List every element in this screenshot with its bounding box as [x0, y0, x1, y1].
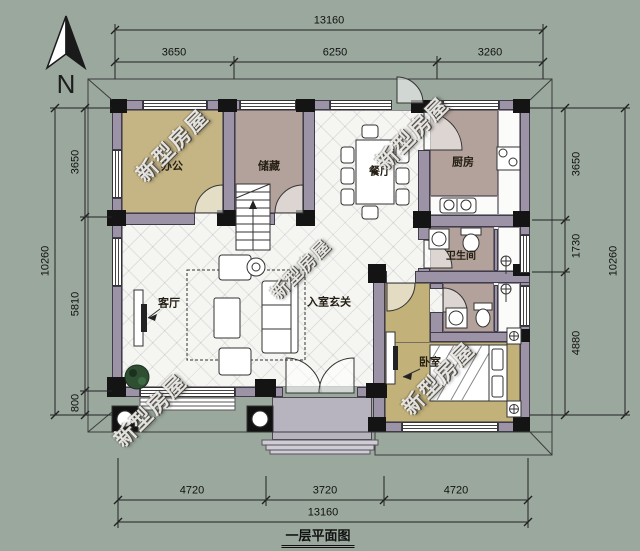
wall-office-east	[223, 110, 235, 213]
wall-bedroom-west	[373, 271, 385, 432]
entry-porch-slab	[272, 397, 372, 440]
wall-storage-east	[303, 110, 315, 213]
dim-right-seg-3: 4880	[572, 331, 583, 355]
dim-left-seg-3: 800	[71, 394, 82, 412]
plan-title: 一层平面图	[281, 529, 354, 543]
window-dining-north	[330, 100, 392, 110]
dim-bottom-seg-3: 4720	[444, 486, 468, 497]
wall-shower-divider-1	[494, 229, 498, 271]
floor-plan-canvas: 13160 3650 6250 3260 10260 3650 5810 800…	[0, 0, 640, 551]
room-label-living: 客厅	[158, 299, 180, 310]
north-arrow-icon	[47, 16, 85, 68]
dim-top-seg-1: 3650	[162, 48, 186, 59]
wall-bath-west-a	[418, 227, 430, 240]
dim-left-seg-2: 5810	[71, 292, 82, 316]
dim-right-seg-2: 1730	[572, 234, 583, 258]
column-block	[513, 211, 530, 227]
plan-title-text: 一层平面图	[281, 528, 354, 548]
column-block	[218, 99, 237, 112]
room-label-bathroom: 卫生间	[446, 252, 476, 262]
dim-right-total: 10260	[609, 246, 620, 277]
column-block	[255, 379, 276, 397]
kitchen-counter-south	[430, 196, 498, 215]
shower-area-2	[498, 283, 520, 332]
bathroom-floor	[430, 227, 494, 271]
kitchen-counter-east	[498, 110, 520, 215]
room-label-kitchen: 厨房	[452, 158, 474, 169]
window-ensuite-east	[520, 286, 530, 326]
window-living-west	[112, 238, 122, 286]
window-office-west	[112, 150, 122, 198]
north-label: N	[57, 71, 76, 97]
dim-right-seg-1: 3650	[572, 152, 583, 176]
column-block	[107, 210, 126, 226]
dim-bottom-seg-2: 3720	[313, 486, 337, 497]
column-block	[296, 99, 315, 112]
window-bedroom-south	[402, 422, 498, 432]
wall-ensuite-west-a	[430, 283, 443, 289]
ensuite-floor	[443, 283, 494, 332]
dim-top-total: 13160	[314, 16, 345, 27]
column-block	[217, 210, 236, 226]
column-block	[368, 264, 386, 283]
dim-left-total: 10260	[41, 246, 52, 277]
wall-shower-divider-2	[494, 285, 498, 332]
column-block	[296, 210, 315, 226]
dim-left-seg-1: 3650	[71, 150, 82, 174]
column-block	[110, 99, 127, 113]
dim-bottom-total: 13160	[308, 508, 339, 519]
room-label-storage: 储藏	[258, 162, 280, 173]
column-block	[513, 417, 530, 432]
dim-top-seg-3: 3260	[478, 48, 502, 59]
column-block	[513, 329, 530, 342]
wall-kitchen-west	[418, 150, 430, 215]
column-block	[513, 99, 530, 113]
window-storage-north	[240, 100, 296, 110]
dim-bottom-seg-1: 4720	[180, 486, 204, 497]
room-label-foyer: 入室玄关	[307, 298, 351, 309]
column-block	[413, 211, 431, 228]
window-bath-east	[520, 235, 530, 273]
column-block	[107, 377, 126, 397]
column-block	[366, 383, 387, 398]
column-block	[368, 417, 386, 432]
dim-top-seg-2: 6250	[323, 48, 347, 59]
